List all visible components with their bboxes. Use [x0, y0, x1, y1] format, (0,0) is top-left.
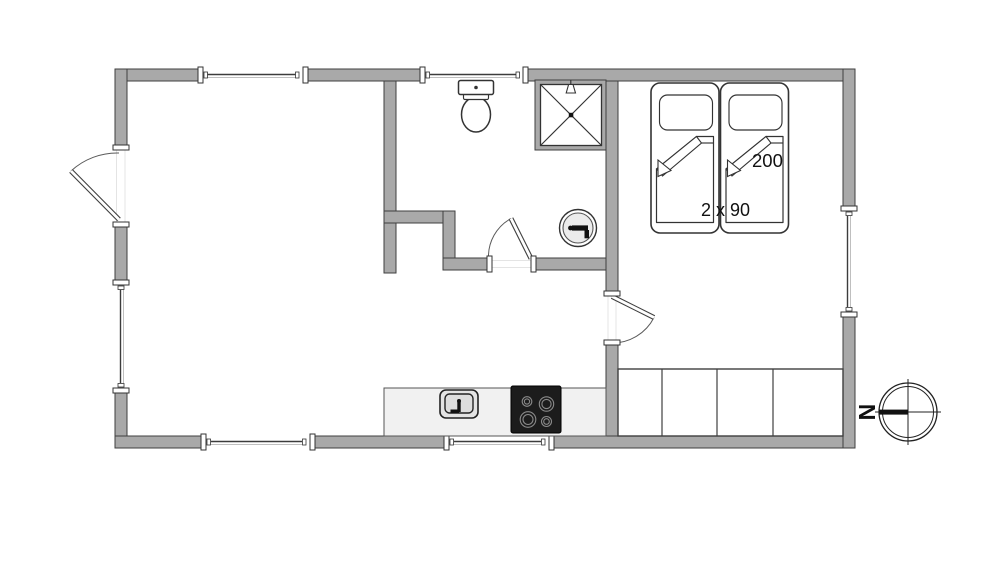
kitchen-counter [384, 388, 606, 436]
floor-plan-page: 200 2 x 90 [0, 0, 1000, 562]
toilet [459, 81, 494, 133]
stove-top [511, 386, 561, 433]
shower [535, 80, 606, 150]
kitchen [384, 386, 606, 436]
door-swing-arc [612, 318, 654, 344]
stove [511, 386, 561, 433]
wall-segment [384, 81, 396, 273]
wall-segment [303, 69, 425, 81]
wall-segment [528, 69, 855, 81]
wall-segment [549, 436, 855, 448]
washbasin [560, 210, 597, 247]
bed-width-label: 2 x 90 [701, 200, 750, 220]
bed-length-label: 200 [752, 150, 783, 171]
bathroom-door [487, 219, 536, 273]
window-right [841, 206, 857, 317]
wall-segment [606, 340, 618, 436]
toilet-bowl [462, 97, 491, 132]
wall-segment [843, 69, 855, 211]
wall-segment [115, 69, 127, 150]
wall-segment [606, 81, 618, 296]
wardrobe [618, 369, 843, 436]
wall-segment [843, 312, 855, 448]
wardrobe-outline [618, 369, 843, 436]
bathroom-fixtures [459, 80, 607, 247]
door-swing-arc [488, 219, 511, 259]
floor-plan-drawing: 200 2 x 90 [0, 0, 1000, 562]
toilet-button [474, 86, 478, 90]
washbasin-tap-icon [572, 225, 588, 230]
compass-rose: N [854, 379, 941, 445]
shower-drain [569, 113, 574, 118]
wall-segment [310, 436, 449, 448]
window-left [113, 280, 129, 393]
compass-north-pointer [879, 410, 908, 415]
pillow [660, 95, 713, 130]
pillow [729, 95, 782, 130]
wall-segment [531, 258, 618, 270]
wall-segment [115, 69, 203, 81]
door-swing-arc [71, 153, 119, 171]
wall-segment [115, 222, 127, 285]
bedroom-door [604, 291, 654, 345]
doors [71, 145, 654, 345]
wall-segment [443, 258, 492, 270]
window-top-left [198, 67, 308, 83]
compass-north-label: N [854, 404, 880, 421]
bedroom-furniture: 200 2 x 90 [618, 83, 843, 436]
wall-segment [115, 436, 206, 448]
kitchen-sink [440, 390, 478, 418]
window-bottom-left [201, 434, 315, 450]
entrance-door [71, 145, 129, 227]
